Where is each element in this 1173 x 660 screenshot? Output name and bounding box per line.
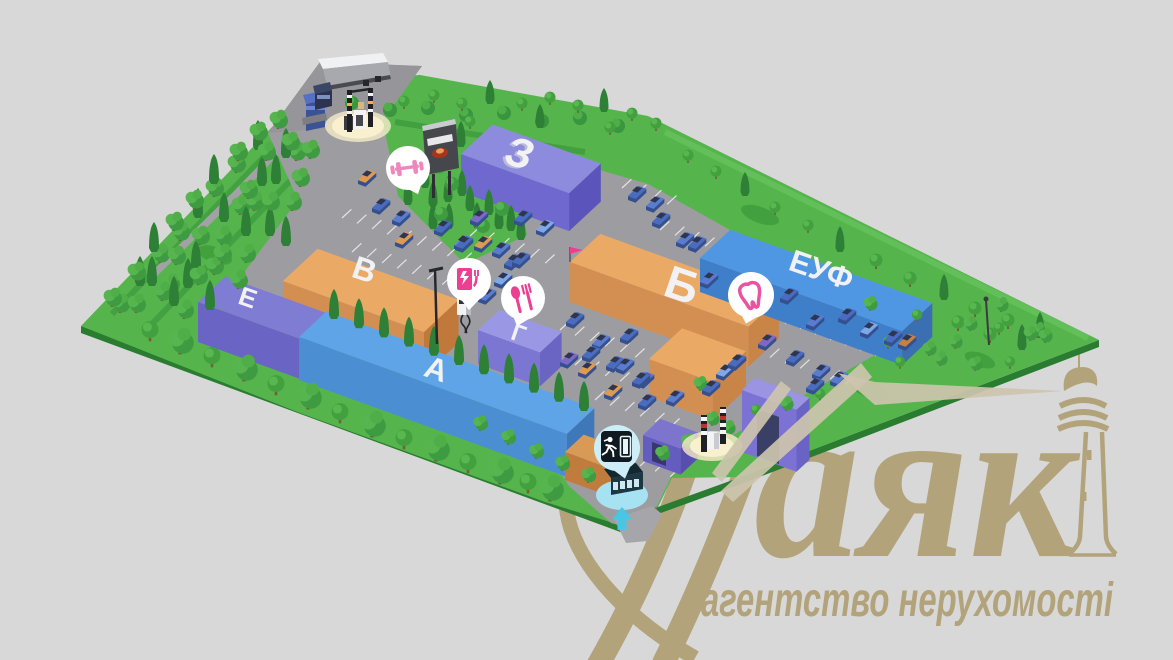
- svg-text:агентство нерухомості: агентство нерухомості: [701, 574, 1114, 627]
